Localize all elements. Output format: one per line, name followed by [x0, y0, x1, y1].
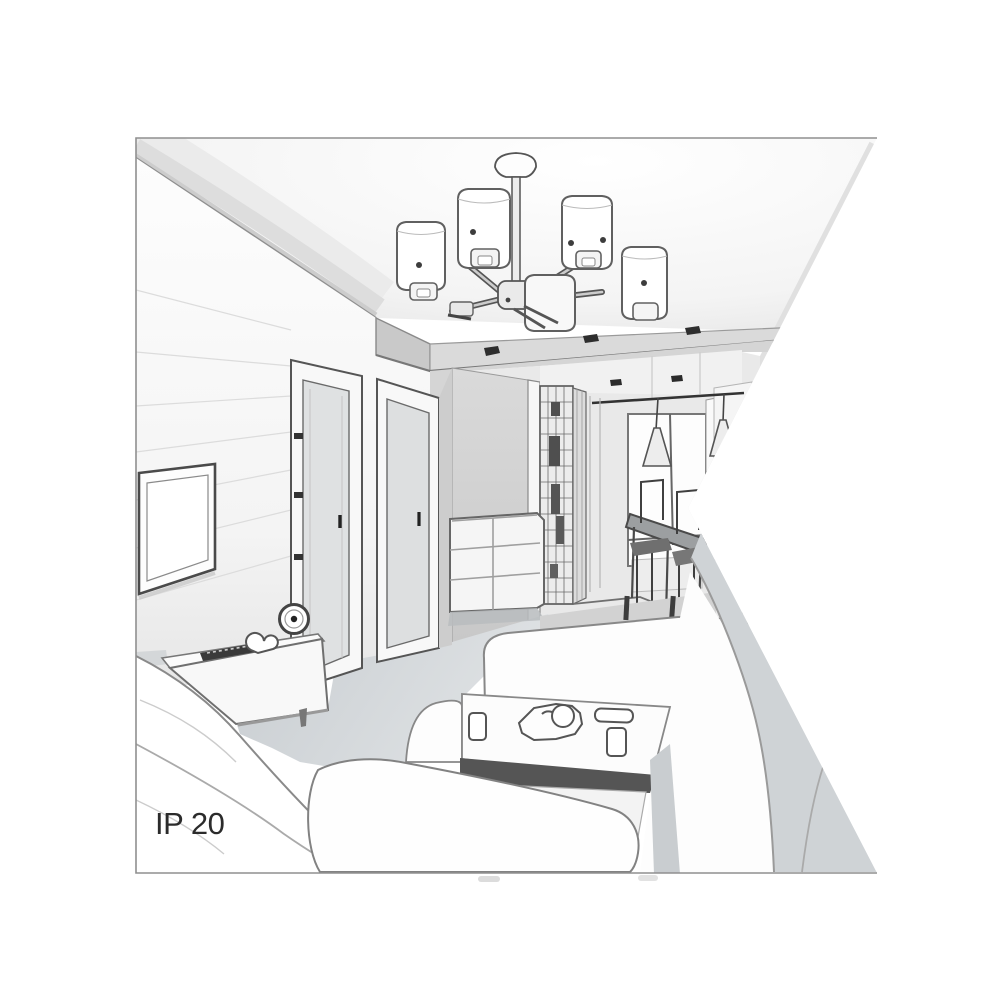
- svg-text:IP 20: IP 20: [155, 806, 225, 841]
